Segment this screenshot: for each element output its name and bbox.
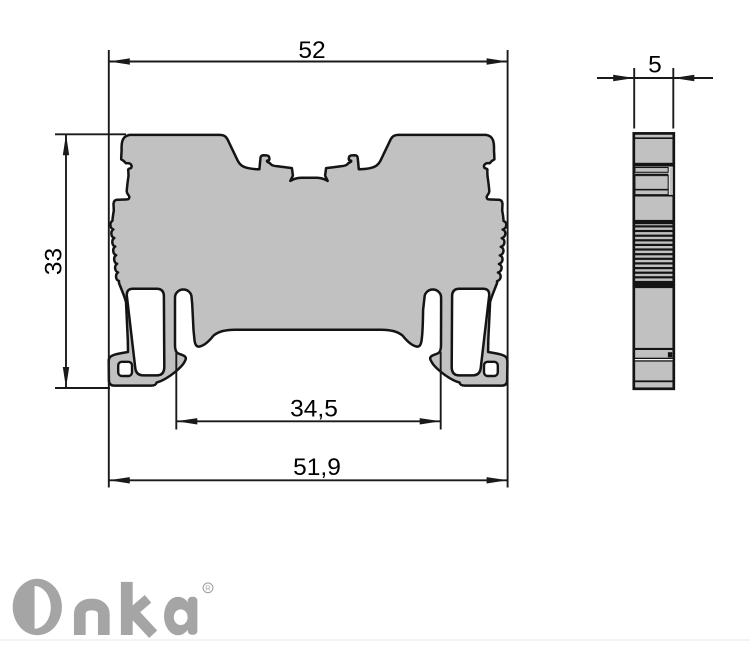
svg-text:51,9: 51,9	[293, 454, 341, 481]
svg-text:52: 52	[298, 37, 325, 64]
svg-text:34,5: 34,5	[290, 396, 338, 423]
svg-text:33: 33	[41, 248, 68, 275]
svg-text:R: R	[205, 584, 211, 593]
svg-text:5: 5	[648, 52, 662, 79]
